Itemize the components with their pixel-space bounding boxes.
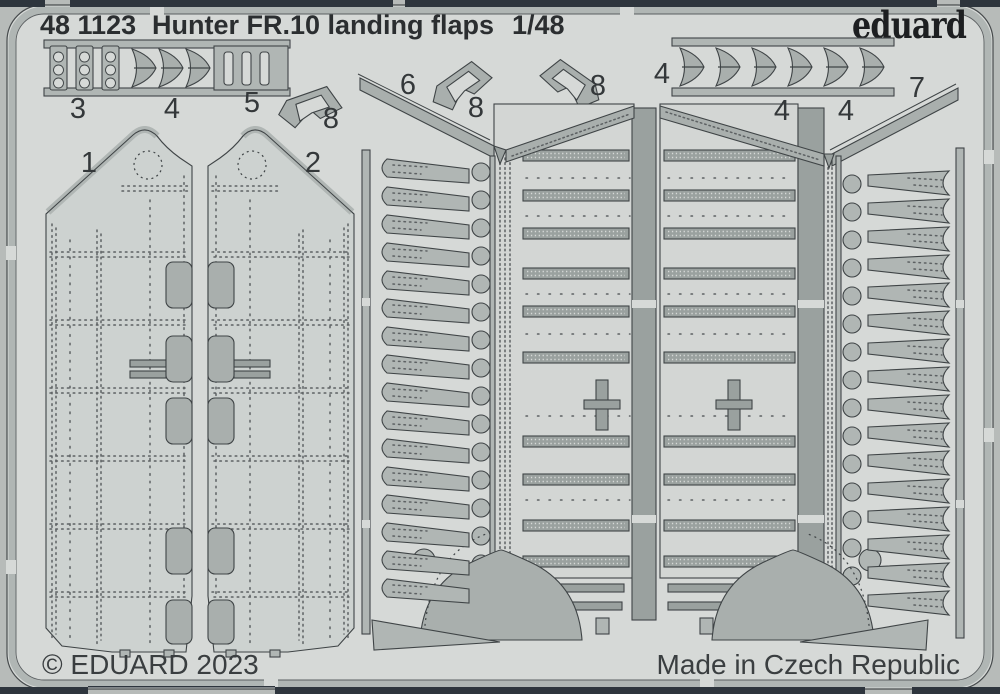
label-part-4a: 4 [164,93,180,125]
label-part-8-center-right: 8 [590,70,606,102]
top-border-bar [0,0,1000,7]
flap-skin-panel-1 [46,129,192,657]
label-part-7: 7 [909,72,925,104]
spar-bar-left [632,108,656,620]
slot-strip-parts [214,46,288,90]
catalog-number: 48 1123 [40,10,136,40]
label-part-8-left: 8 [323,103,339,135]
pe-fret-sheet: 48 1123 Hunter FR.10 landing flaps 1/48 … [0,0,1000,694]
label-part-8-center-left: 8 [468,92,484,124]
scale-label: 1/48 [512,10,565,40]
spar-bar-right [798,108,824,620]
copyright-text: © EDUARD 2023 [42,649,259,680]
label-part-4b: 4 [654,58,670,90]
label-part-1: 1 [81,147,97,179]
label-part-5: 5 [244,87,260,119]
scallop-rail-right [836,156,841,632]
label-part-4d: 4 [838,95,854,127]
label-part-4c: 4 [774,95,790,127]
wing-bracket-parts-left [132,49,210,87]
label-part-6: 6 [400,69,416,101]
flap-skin-panel-2 [208,129,354,657]
made-in-text: Made in Czech Republic [657,649,961,680]
label-part-2: 2 [305,147,321,179]
hinge-strip-parts [50,46,119,90]
product-image: 48 1123 Hunter FR.10 landing flaps 1/48 … [0,0,1000,694]
product-title: Hunter FR.10 landing flaps [152,10,494,40]
label-part-3: 3 [70,93,86,125]
